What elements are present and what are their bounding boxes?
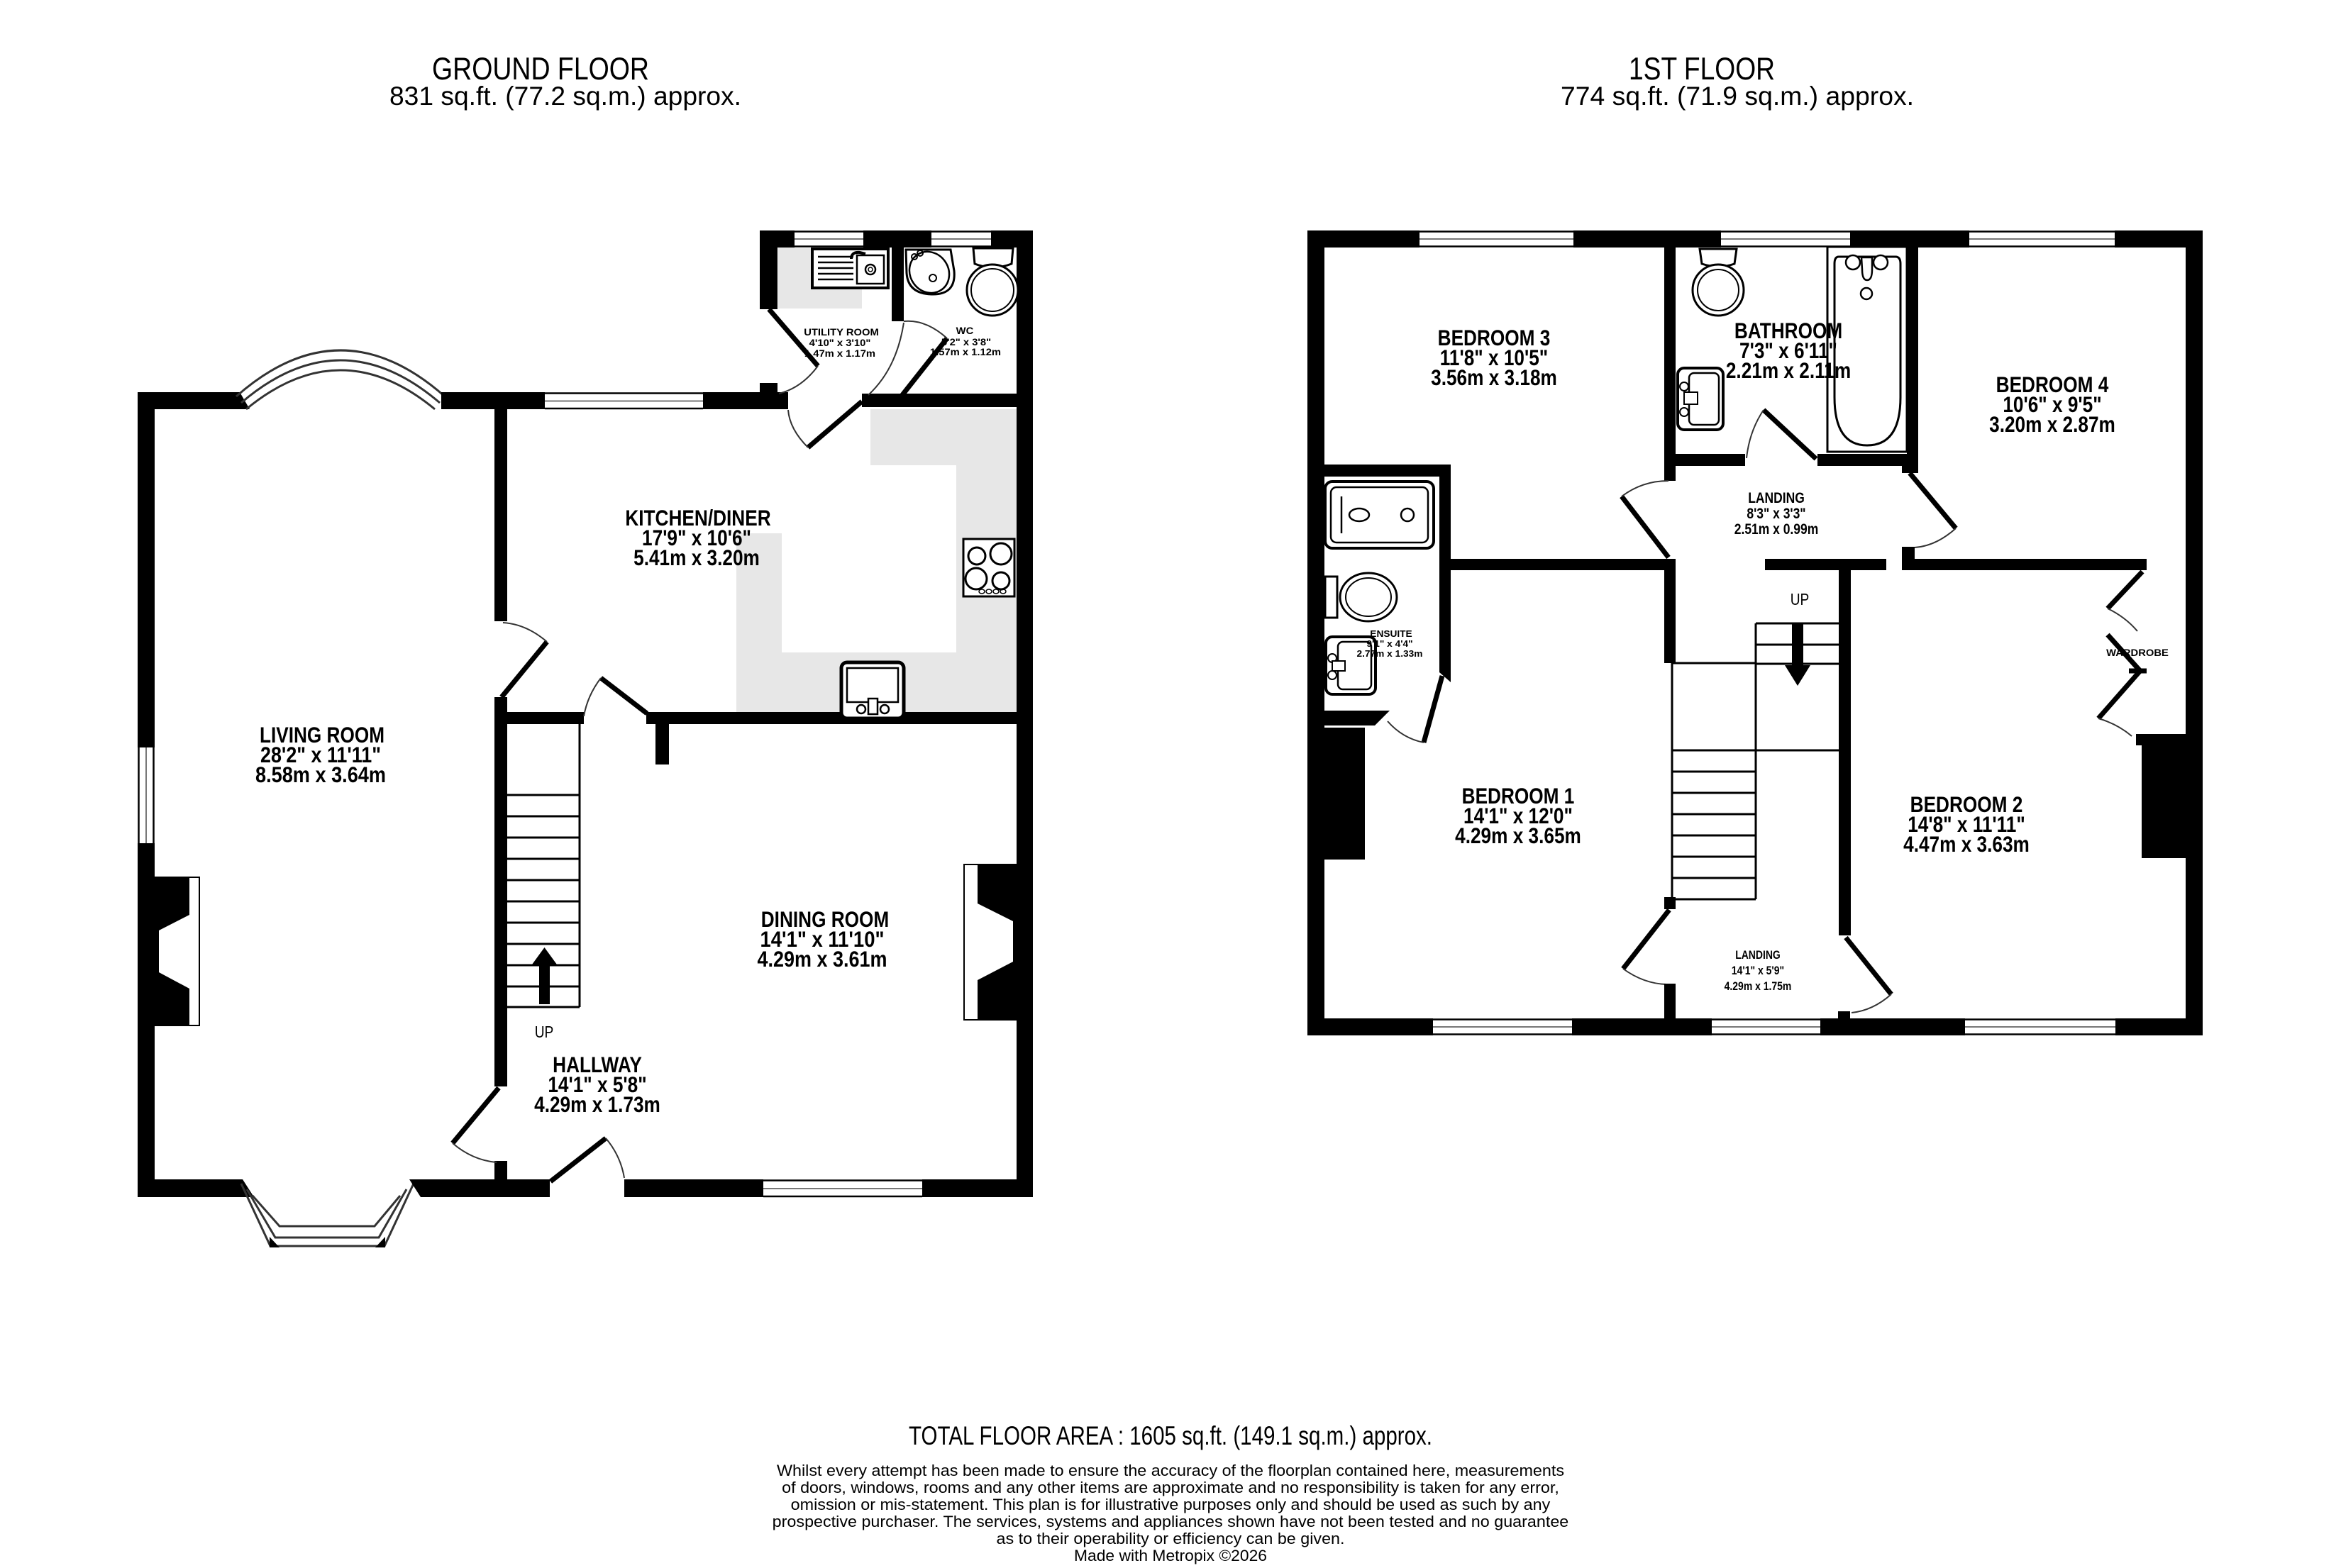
svg-text:2.77m x 1.33m: 2.77m x 1.33m: [1357, 648, 1423, 659]
svg-text:TOTAL FLOOR AREA : 1605 sq.ft.: TOTAL FLOOR AREA : 1605 sq.ft. (149.1 sq…: [909, 1420, 1432, 1450]
svg-text:4.29m x 3.65m: 4.29m x 3.65m: [1455, 823, 1581, 848]
svg-text:774 sq.ft. (71.9 sq.m.) approx: 774 sq.ft. (71.9 sq.m.) approx.: [1561, 81, 1914, 111]
svg-text:5.41m x 3.20m: 5.41m x 3.20m: [633, 545, 760, 570]
svg-text:prospective purchaser. The ser: prospective purchaser. The services, sys…: [773, 1513, 1569, 1530]
svg-text:3.20m x 2.87m: 3.20m x 2.87m: [1989, 411, 2115, 437]
svg-text:Made with Metropix ©2026: Made with Metropix ©2026: [1074, 1547, 1267, 1564]
svg-text:UTILITY ROOM: UTILITY ROOM: [804, 326, 879, 338]
svg-text:Whilst every attempt has been: Whilst every attempt has been made to en…: [777, 1462, 1564, 1479]
svg-text:UP: UP: [1791, 590, 1810, 608]
svg-text:LANDING: LANDING: [1748, 490, 1805, 506]
svg-text:4.29m x 3.61m: 4.29m x 3.61m: [758, 946, 887, 972]
svg-text:of doors, windows, rooms and a: of doors, windows, rooms and any other i…: [782, 1479, 1559, 1496]
svg-text:2.21m x 2.11m: 2.21m x 2.11m: [1726, 357, 1851, 383]
svg-text:831 sq.ft. (77.2 sq.m.) approx: 831 sq.ft. (77.2 sq.m.) approx.: [389, 81, 741, 111]
svg-text:omission or mis-statement. Thi: omission or mis-statement. This plan is …: [791, 1496, 1551, 1513]
svg-text:ENSUITE: ENSUITE: [1370, 628, 1412, 639]
svg-text:9'1" x 4'4": 9'1" x 4'4": [1366, 638, 1412, 649]
svg-text:1.47m x 1.17m: 1.47m x 1.17m: [804, 347, 875, 359]
svg-text:UP: UP: [535, 1023, 554, 1041]
svg-text:3.56m x 3.18m: 3.56m x 3.18m: [1431, 365, 1557, 390]
svg-text:as to their operability or eff: as to their operability or efficiency ca…: [997, 1530, 1345, 1547]
svg-text:8.58m x 3.64m: 8.58m x 3.64m: [255, 762, 386, 787]
svg-text:WC: WC: [956, 325, 974, 336]
svg-text:14'1" x 5'9": 14'1" x 5'9": [1732, 964, 1784, 977]
svg-text:2.51m x 0.99m: 2.51m x 0.99m: [1734, 521, 1819, 538]
svg-text:4'10" x 3'10": 4'10" x 3'10": [809, 337, 871, 348]
svg-text:8'3" x 3'3": 8'3" x 3'3": [1747, 506, 1805, 522]
svg-text:4.47m x 3.63m: 4.47m x 3.63m: [1903, 831, 2030, 857]
svg-text:WARDROBE: WARDROBE: [2106, 647, 2169, 658]
svg-text:1.57m x 1.12m: 1.57m x 1.12m: [930, 346, 1001, 357]
svg-text:4.29m x 1.73m: 4.29m x 1.73m: [534, 1091, 660, 1117]
svg-text:4.29m x 1.75m: 4.29m x 1.75m: [1725, 979, 1792, 993]
svg-text:LANDING: LANDING: [1735, 948, 1781, 962]
